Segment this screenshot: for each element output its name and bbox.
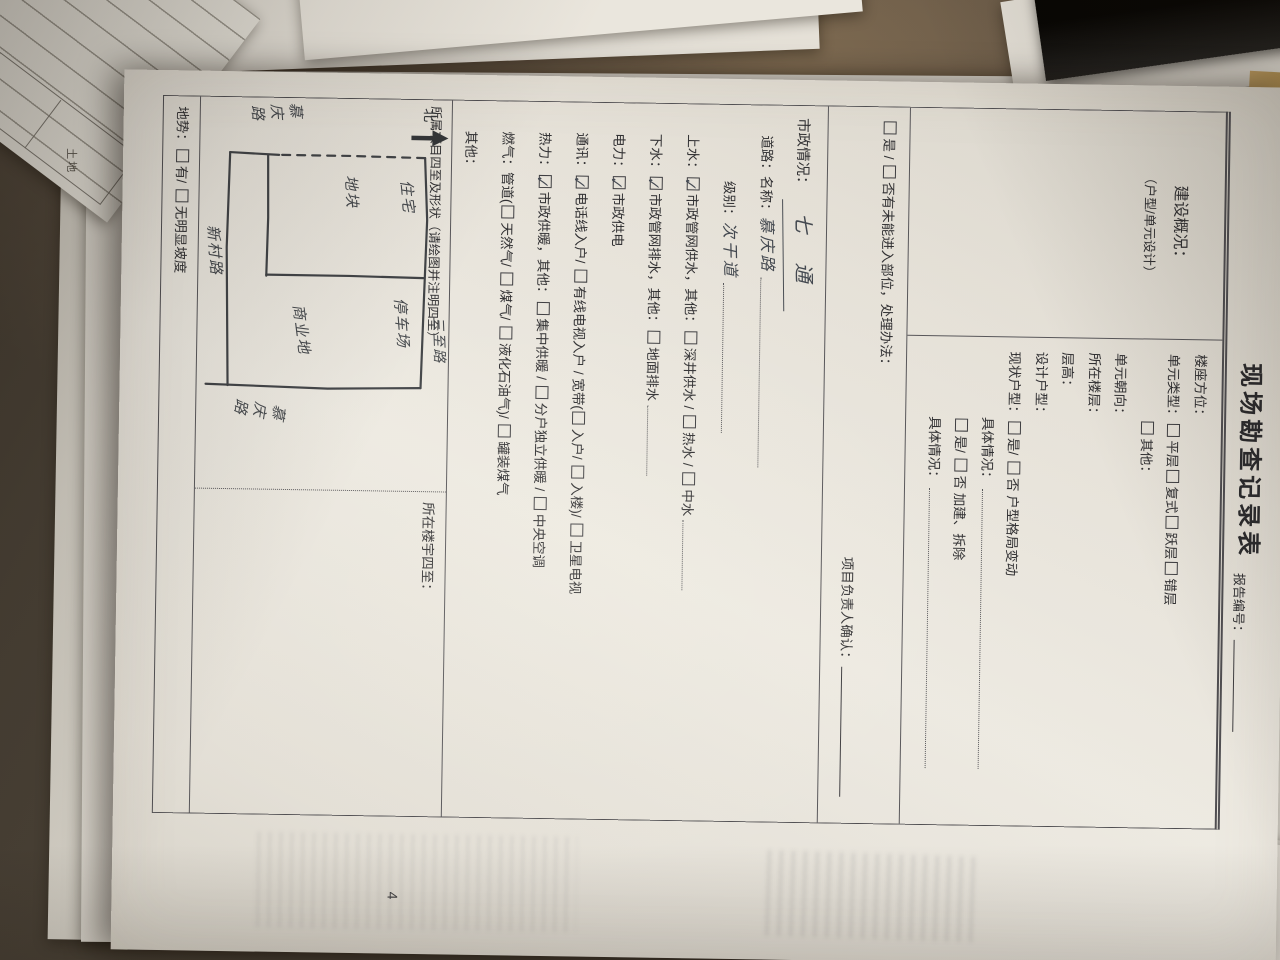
checkbox — [534, 497, 547, 510]
printed-text: 道路：名称： — [758, 135, 774, 216]
checkbox — [684, 331, 697, 344]
survey-form-paper: 现场勘查记录表 报告编号： 建设概况： （户型/单元设计） 楼座方位：单元类型：… — [111, 69, 1280, 960]
dotted-blank — [681, 520, 687, 590]
checkbox — [955, 419, 968, 432]
printed-text: 通讯： — [574, 132, 590, 173]
checkbox — [535, 386, 548, 399]
printed-text: 层高： — [1060, 352, 1076, 393]
north-arrow-icon — [411, 130, 448, 147]
bleedthrough-smudge-2 — [256, 832, 577, 933]
checkbox-label: 有/ — [174, 166, 189, 187]
checkbox — [1141, 421, 1154, 434]
printed-text: 燃气：管道( — [499, 131, 515, 203]
municipal-row: 市政情况：七 通 道路：名称：慕庆路级别：次干道上水：市政管网供水，其他：深井供… — [441, 101, 828, 823]
sketch-road-top: 三至路 — [428, 316, 450, 365]
checkbox — [1167, 469, 1180, 482]
printed-text: 其他： — [535, 259, 551, 300]
overview-label-cell: 建设概况： （户型/单元设计） — [907, 108, 1226, 341]
checkbox-label: 复式 — [1164, 486, 1179, 513]
printed-text: 下水： — [648, 134, 664, 175]
printed-text: 设计户型： — [1033, 352, 1049, 420]
checkbox — [571, 465, 584, 478]
checkbox-label: 天然气/ — [498, 222, 514, 270]
photo-canvas: 土地 周边道 高 现场勘查记录表 报告编号： 建设概况： （户型/单元设计） 楼… — [0, 0, 1280, 960]
checkbox — [1167, 423, 1180, 436]
bleedthrough-smudge — [765, 850, 978, 943]
printed-text: 上水： — [685, 134, 701, 175]
checkbox-checked — [650, 176, 663, 189]
checkbox — [572, 412, 585, 425]
checkbox-label: 热水 / — [680, 432, 696, 470]
checkbox — [1008, 461, 1021, 474]
printed-text: 其他： — [645, 288, 661, 329]
north-label: 北 — [420, 108, 440, 122]
checkbox — [682, 472, 695, 485]
checkbox-label: 电话线入户/ — [572, 192, 588, 267]
printed-text: 具体情况： — [926, 416, 942, 484]
handwriting: 慕庆路 — [747, 216, 785, 274]
handwriting: 次干道 — [710, 221, 748, 279]
sketch-label-parking: 停车场 — [390, 297, 415, 349]
checkbox-label: 否有未能进入部位，处理办法： — [878, 182, 896, 371]
checkbox — [498, 424, 511, 437]
printed-text: 单元类型： — [1166, 354, 1182, 422]
checkbox-label: 市政管网供水， — [683, 194, 699, 289]
overview-label-title: 建设概况： — [1168, 112, 1196, 339]
sketch-label-plot: 地块 — [341, 174, 364, 209]
building-boundary-cell: 所在楼宇四至： — [190, 489, 446, 817]
checkbox-checked — [576, 175, 589, 188]
printed-text: 单元朝向： — [1113, 353, 1129, 421]
dotted-blank — [721, 282, 728, 432]
checkbox — [574, 269, 587, 282]
checkbox-label: 无明显坡度 — [172, 206, 188, 274]
checkbox — [499, 326, 512, 339]
printed-text: 加建、拆除 — [951, 493, 967, 561]
checkbox-label: 否 — [1005, 478, 1020, 495]
sketch-label-residential: 住宅 — [396, 179, 420, 215]
checkbox-checked — [539, 174, 552, 187]
municipal-header-label: 市政情况： — [794, 118, 811, 191]
site-sketch-cell: 所属项目四至及形状（请绘图并注明四至） — [195, 97, 452, 493]
printed-text: 具体情况： — [979, 417, 995, 485]
overview-row: 建设概况： （户型/单元设计） 楼座方位：单元类型：平层复式跃层错层其他：单元朝… — [899, 108, 1226, 829]
dotted-blank — [978, 488, 987, 768]
checkbox-label: 是/ — [1006, 438, 1021, 459]
checkbox-label: 市政供电 — [610, 193, 626, 247]
hand-drawn-sketch — [194, 97, 452, 493]
boundary-row: 所属项目四至及形状（请绘图并注明四至） — [189, 97, 452, 817]
printed-text: 所在楼层： — [1086, 353, 1102, 421]
sketch-road-left: 慕庆路 — [246, 98, 304, 123]
dotted-blank — [925, 488, 934, 768]
checkbox — [500, 272, 513, 285]
checkbox — [683, 415, 696, 428]
printed-text: 其他： — [682, 288, 698, 329]
printed-text: 热力： — [537, 132, 553, 173]
report-number-line: 报告编号： — [1228, 573, 1249, 732]
checkbox — [647, 330, 660, 343]
checkbox-label: 跃层 — [1163, 532, 1178, 559]
checkbox-label: 入楼)/ — [568, 482, 584, 521]
checkbox — [883, 165, 896, 178]
checkbox-label: 地面排水 — [644, 347, 660, 401]
dotted-blank — [646, 405, 652, 475]
checkbox — [1008, 421, 1021, 434]
access-line: 是 / 否有未能进入部位，处理办法： — [870, 119, 901, 811]
checkbox-label: 罐装煤气 — [495, 441, 511, 495]
checkbox — [175, 189, 188, 202]
overview-content-cell: 楼座方位：单元类型：平层复式跃层错层其他：单元朝向：所在楼层：层高：设计户型：现… — [900, 336, 1223, 829]
background-paper-text: 土地 — [64, 148, 80, 174]
printed-text: 楼座方位： — [1192, 354, 1208, 422]
building-boundary-header: 所在楼宇四至： — [415, 502, 440, 816]
checkbox — [570, 523, 583, 536]
confirm-label: 项目负责人确认： — [838, 557, 855, 665]
confirm-blank — [839, 667, 854, 797]
checkbox-label: 入户/ — [569, 429, 585, 464]
overview-label-sub: （户型/单元设计） — [1139, 111, 1162, 338]
checkbox-checked — [687, 177, 700, 190]
checkbox-label: 煤气/ — [498, 289, 514, 324]
checkbox-checked — [613, 176, 626, 189]
checkbox-label: 错层 — [1163, 578, 1178, 605]
checkbox-label: 分户独立供暖 / — [532, 403, 548, 495]
form-table: 建设概况： （户型/单元设计） 楼座方位：单元类型：平层复式跃层错层其他：单元朝… — [152, 95, 1231, 830]
confirm-line: 项目负责人确认： — [835, 557, 859, 797]
printed-text: 地势： — [174, 106, 190, 147]
checkbox-label: 否 — [952, 475, 967, 492]
municipal-lines: 道路：名称：慕庆路级别：次干道上水：市政管网供水，其他：深井供水 / 热水 / … — [442, 113, 786, 810]
checkbox-label: 中央空调 — [531, 514, 547, 568]
access-row: 是 / 否有未能进入部位，处理办法： 项目负责人确认： — [817, 106, 910, 823]
checkbox-label: 有线电视入户 / — [571, 286, 587, 378]
checkbox — [955, 459, 968, 472]
checkbox-label: 深井供水 / — [681, 348, 697, 413]
checkbox — [176, 149, 189, 162]
checkbox-label: 集中供暖 / — [534, 318, 550, 383]
checkbox — [1166, 515, 1179, 528]
checkbox — [1165, 561, 1178, 574]
checkbox — [884, 121, 897, 134]
checkbox-label: 平层 — [1165, 440, 1180, 467]
report-number-label: 报告编号： — [1231, 573, 1247, 638]
page-number: 4 — [384, 892, 400, 900]
checkbox-label: 市政管网排水， — [646, 193, 662, 288]
checkbox — [501, 205, 514, 218]
printed-text: 户型格局变动 — [1004, 495, 1020, 576]
report-number-blank — [1232, 640, 1246, 732]
printed-text: 电力： — [611, 133, 627, 174]
sketch-road-bottom: 新村路 — [203, 224, 228, 276]
checkbox-label: 卫星电视 — [567, 540, 583, 594]
checkbox-label: 是/ — [953, 435, 968, 456]
printed-text: 宽带( — [570, 378, 585, 410]
checkbox-label: 中水 — [680, 489, 695, 516]
checkbox — [537, 301, 550, 314]
printed-text: 其他： — [463, 131, 479, 172]
form-title: 现场勘查记录表 — [1233, 363, 1271, 560]
municipal-handwriting: 七 通 — [782, 198, 821, 310]
checkbox-label: 其他： — [1138, 438, 1154, 479]
printed-text: 现状户型： — [1007, 351, 1023, 419]
checkbox-label: 液化石油气)/ — [496, 343, 512, 423]
checkbox-label: 市政供暖， — [536, 191, 552, 259]
dotted-blank — [757, 277, 765, 467]
printed-text: 级别： — [721, 181, 737, 222]
checkbox-label: 是 / — [881, 138, 896, 163]
